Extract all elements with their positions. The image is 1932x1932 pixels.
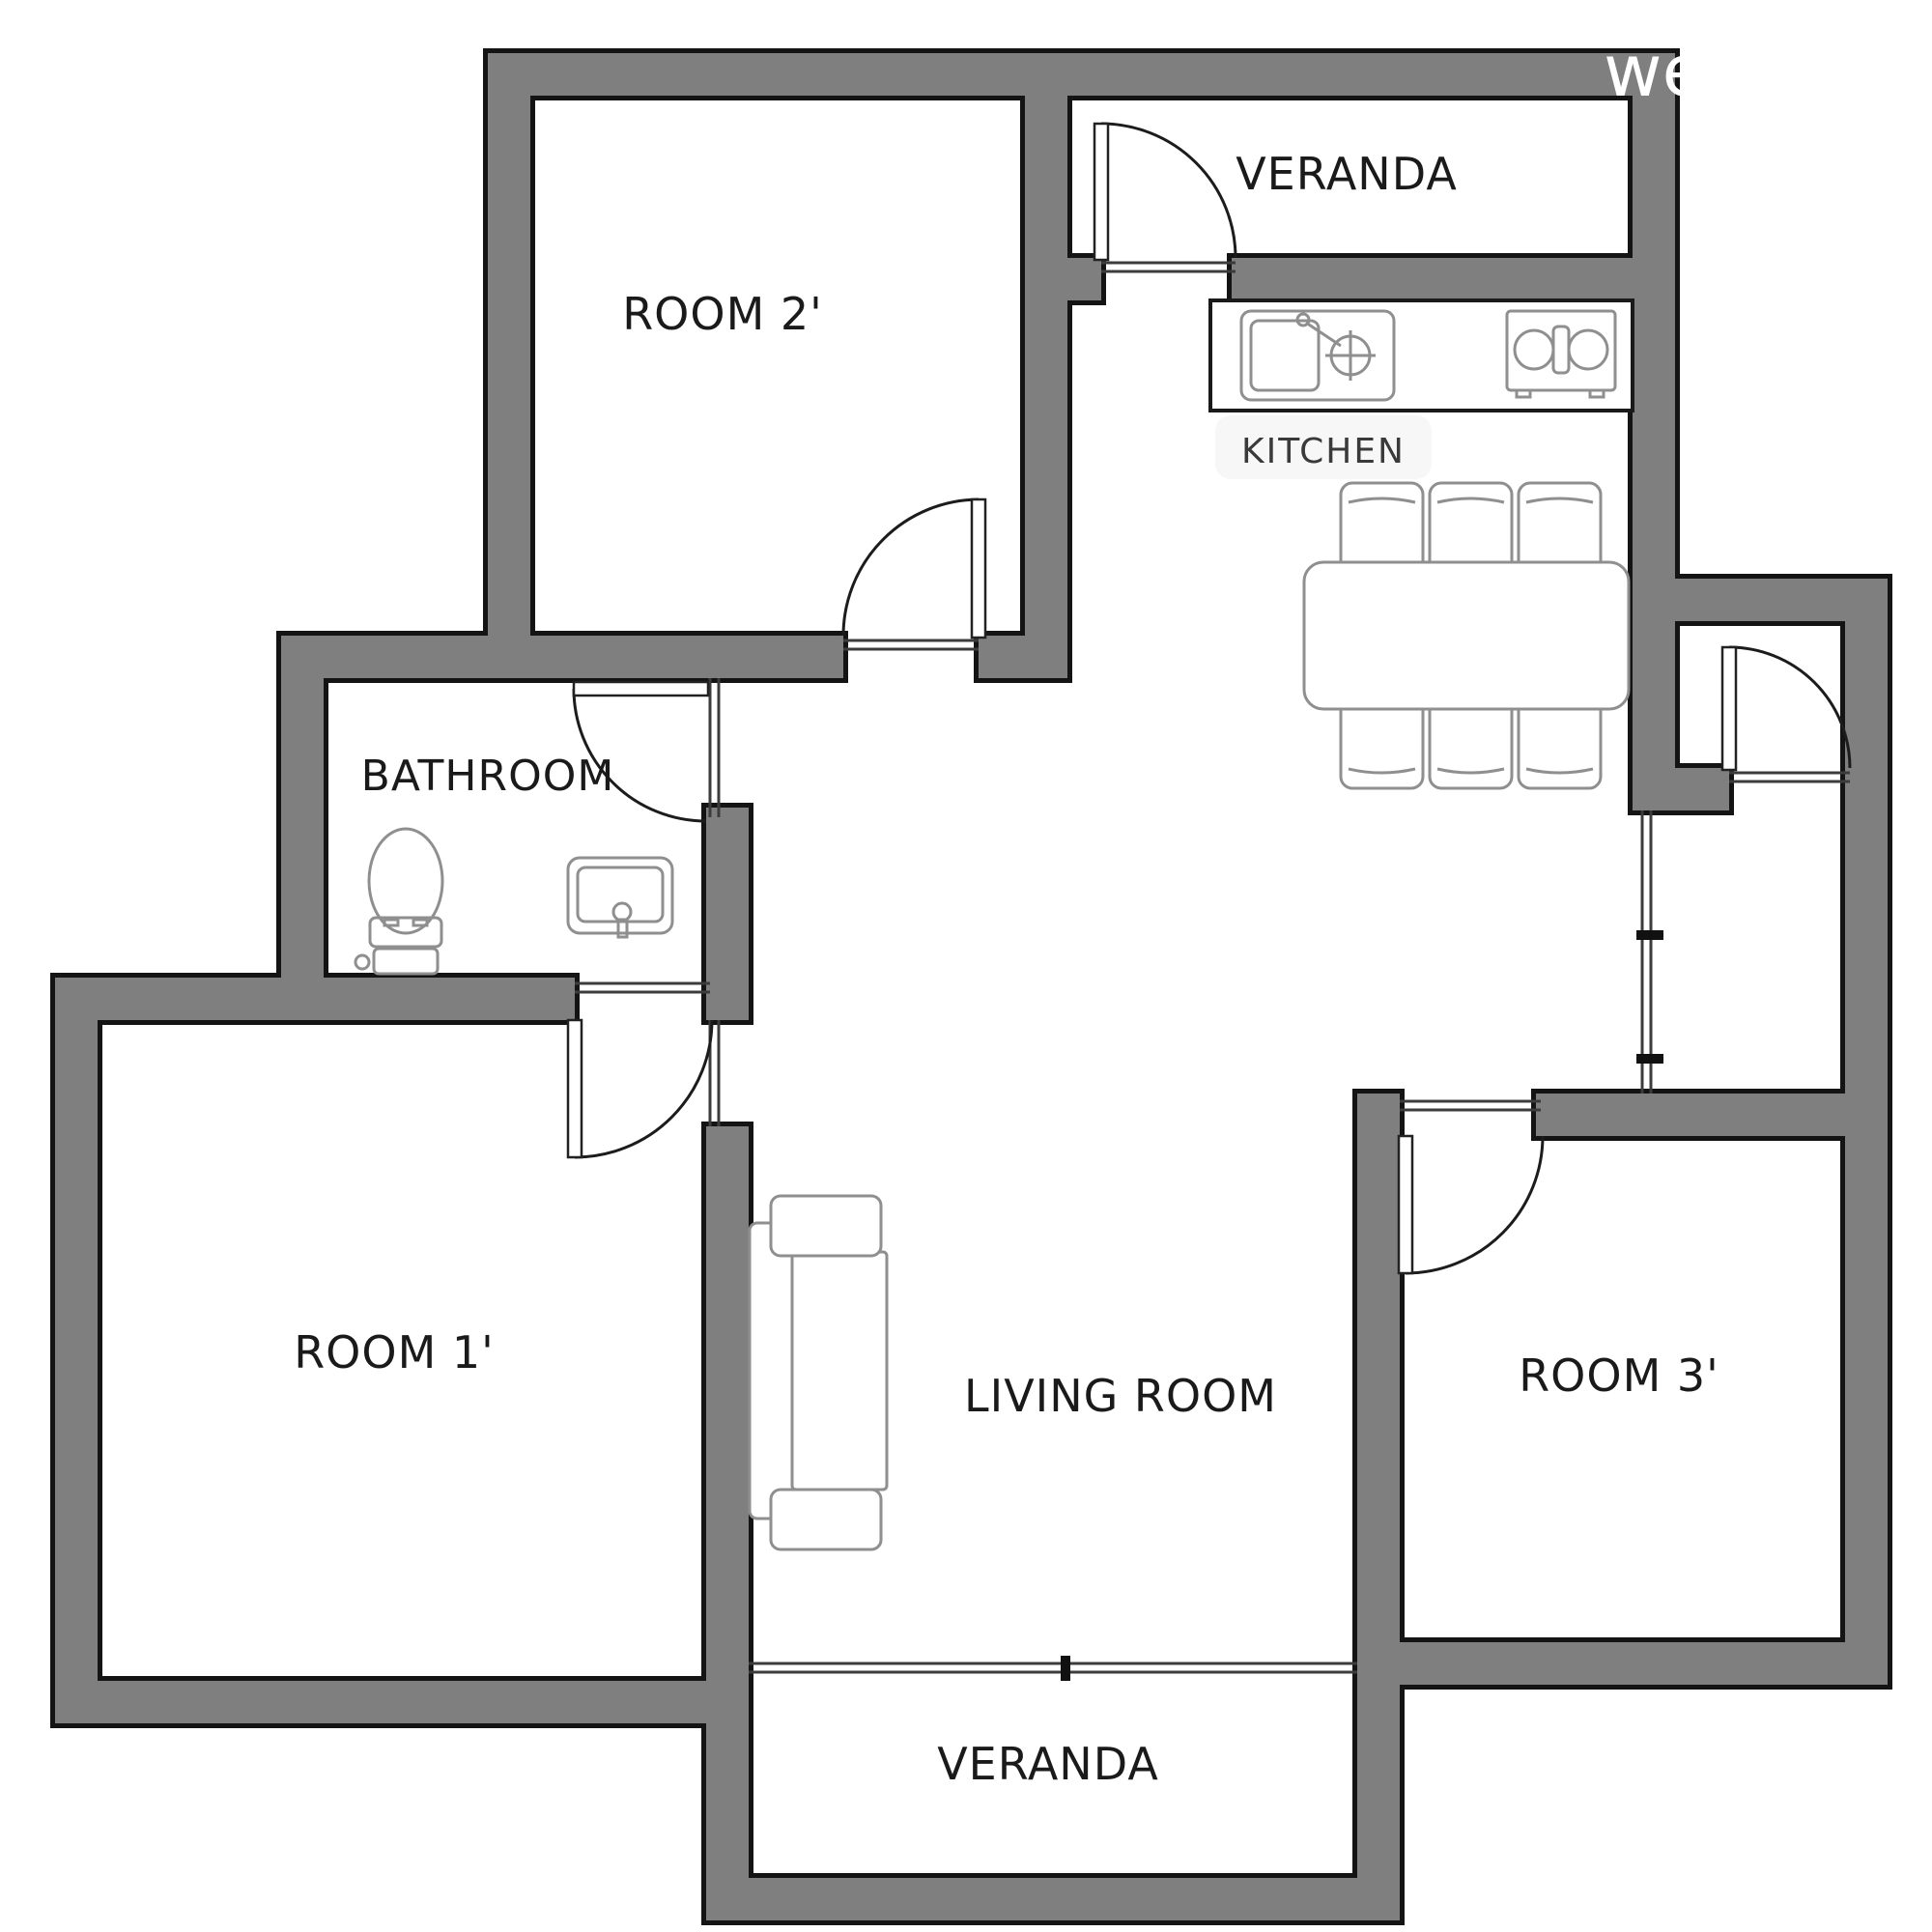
sofa-back (750, 1223, 796, 1519)
furniture-layer (355, 300, 1633, 1549)
veranda-door-leaf (1094, 124, 1108, 260)
room3-door-leaf (1399, 1136, 1412, 1273)
wall-segment (1845, 579, 1888, 1685)
wall-segment (55, 978, 98, 1723)
wall-segment (55, 1681, 749, 1723)
stove (1507, 311, 1615, 390)
watermark-layer: we (1604, 30, 1706, 113)
wall-segment (1850, 768, 1888, 810)
wall-segment (1357, 1642, 1888, 1685)
room-label-kitchen: KITCHEN (1241, 432, 1406, 471)
window-tick (1636, 930, 1663, 940)
room-label-room-2: ROOM 2' (622, 288, 823, 340)
entrance-door-leaf (1722, 647, 1736, 770)
wall-segment (1675, 579, 1888, 621)
wall-segment (1675, 768, 1729, 810)
room2-door-swing-arc (843, 499, 979, 636)
wall-segment (706, 808, 749, 1020)
room-label-living-room: LIVING ROOM (964, 1370, 1277, 1422)
wall-segment (1232, 258, 1675, 300)
sofa-armrest (771, 1196, 881, 1256)
room2-door-leaf (972, 499, 985, 638)
floor-plan-svg: ROOM 2'VERANDAKITCHENBATHROOMROOM 1'LIVI… (0, 0, 1932, 1932)
wall-segment (706, 1126, 749, 1920)
wall-segment (281, 636, 324, 1020)
room1-door-swing-arc (575, 1020, 712, 1157)
floor-plan: ROOM 2'VERANDAKITCHENBATHROOMROOM 1'LIVI… (0, 0, 1932, 1932)
entrance-door-swing-arc (1729, 647, 1850, 768)
wall-segment (1025, 53, 1067, 678)
wall-segment (1536, 1094, 1888, 1136)
wall-segment (1025, 258, 1101, 300)
veranda-door-swing-arc (1101, 124, 1236, 258)
wall-segment (1357, 1094, 1400, 1920)
room-label-bathroom: BATHROOM (361, 752, 615, 801)
toilet-tank-lower (374, 949, 438, 974)
wall-segment (281, 636, 843, 678)
room3-door-swing-arc (1406, 1136, 1543, 1273)
wall-segment (488, 53, 1675, 96)
toilet-flush-button (355, 955, 369, 969)
window-tick (1061, 1656, 1070, 1681)
watermark: we (1604, 30, 1706, 113)
sofa-armrest (771, 1490, 881, 1549)
room1-door-leaf (568, 1020, 582, 1157)
room-label-veranda-top: VERANDA (1236, 148, 1458, 200)
dining-table (1304, 562, 1629, 709)
room-label-room-3: ROOM 3' (1519, 1350, 1719, 1402)
bathroom-door-leaf (574, 682, 708, 696)
wall-segment (1633, 53, 1675, 810)
window-tick (1636, 1054, 1663, 1064)
wall-segment (979, 636, 1067, 678)
sofa-seat (792, 1252, 887, 1490)
wall-segment (55, 978, 575, 1020)
room-label-veranda-bottom: VERANDA (937, 1738, 1159, 1790)
wall-segment (488, 53, 530, 678)
wall-segment (706, 1878, 1400, 1920)
room-label-room-1: ROOM 1' (294, 1326, 495, 1378)
